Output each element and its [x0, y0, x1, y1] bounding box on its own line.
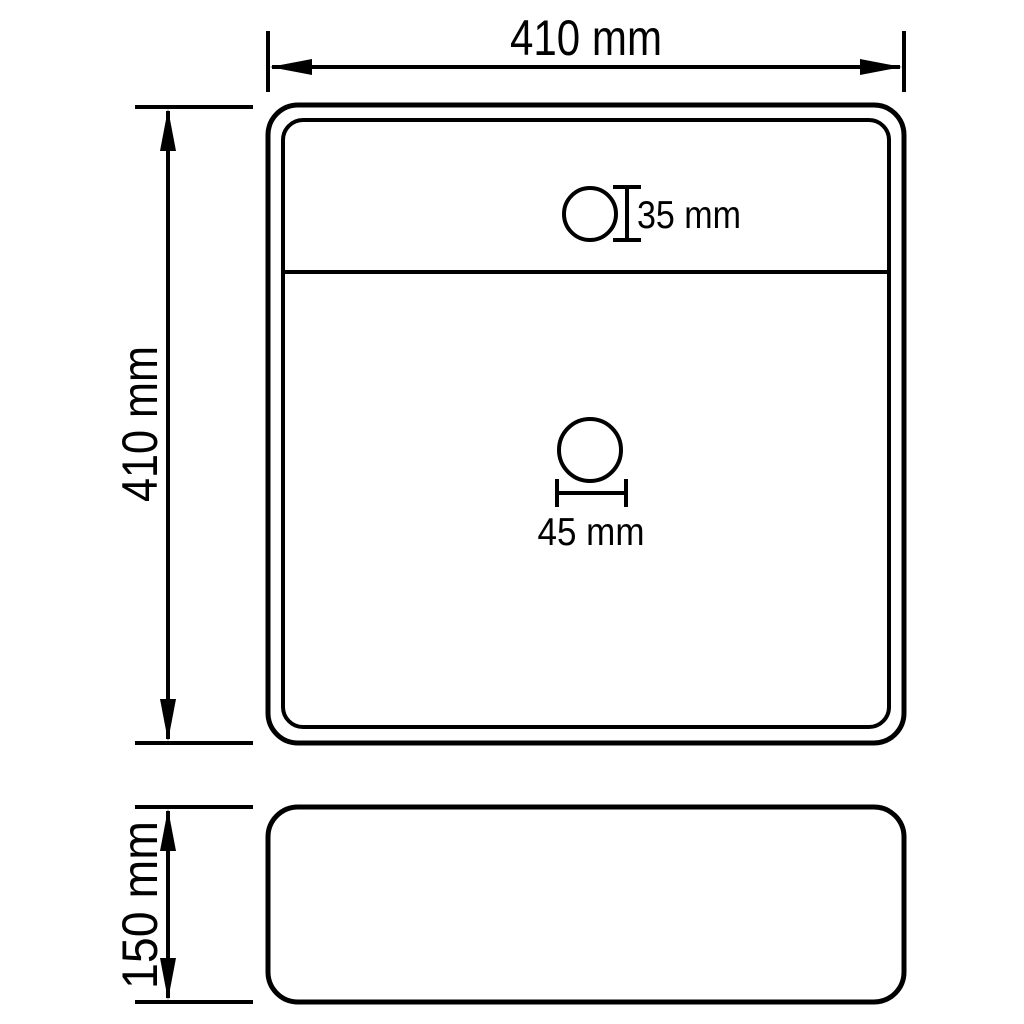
depth-dimension-label: 150 mm: [112, 821, 168, 989]
faucet-hole-label: 35 mm: [637, 194, 741, 237]
washbasin-dimension-diagram: 410 mm 410 mm 35 mm 45 mm 150 mm: [0, 0, 1024, 1024]
width-dimension-label: 410 mm: [510, 10, 662, 66]
height-dimension-label: 410 mm: [112, 346, 168, 502]
drain-hole-label: 45 mm: [538, 511, 645, 554]
